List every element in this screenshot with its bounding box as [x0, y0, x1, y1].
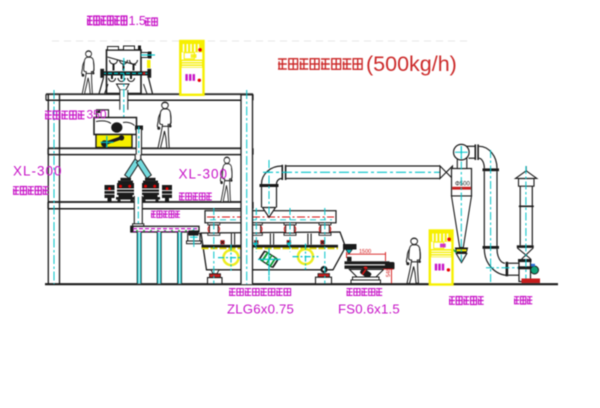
svg-text:1500: 1500 [359, 249, 371, 255]
svg-text:ZLG6x0.75: ZLG6x0.75 [227, 302, 294, 317]
svg-text:350: 350 [87, 108, 107, 122]
svg-text:1.5: 1.5 [129, 14, 146, 28]
svg-text:Φ500: Φ500 [455, 182, 470, 188]
svg-text:548: 548 [386, 268, 392, 277]
svg-text:(500kg/h): (500kg/h) [366, 52, 457, 76]
svg-text:FS0.6x1.5: FS0.6x1.5 [338, 302, 400, 317]
svg-text:XL-300: XL-300 [13, 164, 63, 179]
svg-text:XL-300: XL-300 [179, 167, 229, 182]
